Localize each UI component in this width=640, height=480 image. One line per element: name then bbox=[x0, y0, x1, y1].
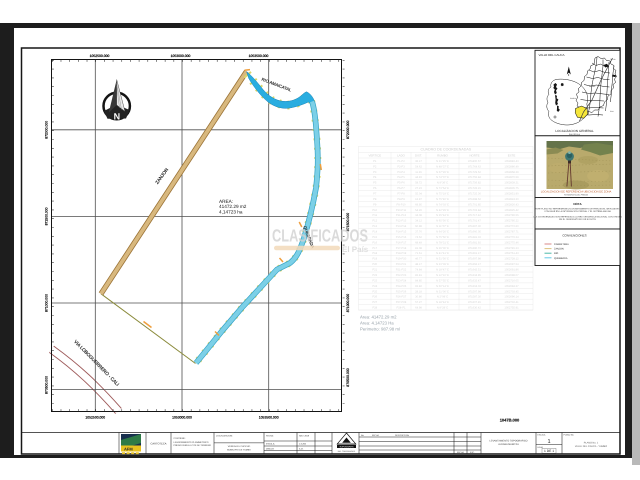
svg-text:P21: P21 bbox=[372, 269, 377, 272]
svg-text:870500.000: 870500.000 bbox=[44, 376, 48, 394]
svg-text:30.86: 30.86 bbox=[415, 296, 422, 299]
svg-text:P22-P23: P22-P23 bbox=[396, 274, 407, 277]
svg-text:P3-P4: P3-P4 bbox=[397, 171, 405, 174]
svg-text:P20-P21: P20-P21 bbox=[396, 263, 407, 266]
svg-text:871666.17: 871666.17 bbox=[468, 263, 481, 266]
svg-text:11.26: 11.26 bbox=[415, 171, 422, 174]
svg-text:28.18: 28.18 bbox=[415, 290, 422, 293]
svg-text:P9-P10: P9-P10 bbox=[397, 203, 406, 206]
svg-text:PLANO No.: PLANO No. bbox=[564, 434, 575, 437]
svg-text:El País: El País bbox=[342, 245, 369, 254]
svg-text:74.84: 74.84 bbox=[415, 269, 422, 272]
svg-text:ZANJON: ZANJON bbox=[554, 248, 564, 251]
svg-text:ESC.: ESC. bbox=[470, 451, 475, 454]
svg-text:CON BASE EN LA INFORMACION PRE: CON BASE EN LA INFORMACION PREDIAL Y EL … bbox=[544, 210, 611, 213]
svg-text:N 21°25' E: N 21°25' E bbox=[436, 160, 449, 163]
svg-text:16.97: 16.97 bbox=[415, 198, 422, 201]
svg-text:1:2.250: 1:2.250 bbox=[299, 443, 307, 446]
svg-text:P10: P10 bbox=[372, 209, 377, 212]
svg-text:Area: 4.14723 Ha: Area: 4.14723 Ha bbox=[360, 321, 394, 326]
svg-text:P7: P7 bbox=[373, 193, 377, 196]
svg-text:46.77: 46.77 bbox=[415, 258, 422, 261]
svg-text:N 50°14' E: N 50°14' E bbox=[436, 285, 449, 288]
svg-text:1052732.41: 1052732.41 bbox=[504, 301, 519, 304]
svg-text:872000.000: 872000.000 bbox=[44, 121, 48, 139]
svg-text:48.17: 48.17 bbox=[415, 263, 422, 266]
svg-text:P27-P28: P27-P28 bbox=[396, 301, 407, 304]
svg-text:MUNICIPIO DE YUMBO: MUNICIPIO DE YUMBO bbox=[227, 448, 251, 451]
svg-text:CLASIFICADOS: CLASIFICADOS bbox=[272, 226, 368, 246]
svg-text:NOV. 2019: NOV. 2019 bbox=[299, 435, 310, 438]
svg-text:LOCALIZACION:: LOCALIZACION: bbox=[216, 435, 233, 438]
svg-text:1052697.54: 1052697.54 bbox=[504, 263, 519, 266]
svg-text:LAS COORDENADAS SON REFERIDAS: LAS COORDENADAS SON REFERIDAS A LA RED G… bbox=[533, 215, 622, 218]
svg-text:CARTOTECA: CARTOTECA bbox=[151, 443, 167, 446]
svg-text:FECHA: FECHA bbox=[457, 451, 464, 454]
svg-text:1053500.000: 1053500.000 bbox=[259, 416, 279, 420]
svg-text:N 2°09' E: N 2°09' E bbox=[437, 296, 449, 299]
svg-text:N 75°50' E: N 75°50' E bbox=[436, 236, 449, 239]
svg-text:1052835.75: 1052835.75 bbox=[504, 187, 519, 190]
svg-text:EN EL OBSERVATORIO DE BOGOTA: EN EL OBSERVATORIO DE BOGOTA bbox=[559, 218, 596, 221]
svg-text:P9: P9 bbox=[373, 203, 377, 206]
svg-text:871702.84: 871702.84 bbox=[468, 209, 481, 212]
svg-text:P23-P24: P23-P24 bbox=[396, 279, 407, 282]
svg-text:1052886.49: 1052886.49 bbox=[504, 165, 519, 168]
svg-text:1047B.000: 1047B.000 bbox=[500, 418, 520, 423]
svg-text:871800.57: 871800.57 bbox=[468, 160, 481, 163]
svg-text:69.95: 69.95 bbox=[415, 203, 422, 206]
svg-text:P4-P5: P4-P5 bbox=[397, 176, 405, 179]
svg-text:P16: P16 bbox=[372, 241, 377, 244]
svg-text:1052694.27: 1052694.27 bbox=[504, 285, 519, 288]
svg-text:1052703.45: 1052703.45 bbox=[504, 290, 519, 293]
svg-text:1052825.42: 1052825.42 bbox=[504, 209, 519, 212]
svg-text:P15: P15 bbox=[372, 236, 377, 239]
svg-text:871000.000: 871000.000 bbox=[44, 294, 48, 312]
svg-text:P13: P13 bbox=[372, 225, 377, 228]
svg-text:LEVANTAMIENTO PLANIMETRICO: LEVANTAMIENTO PLANIMETRICO bbox=[174, 441, 209, 444]
svg-text:1052728.12: 1052728.12 bbox=[504, 258, 519, 261]
svg-text:P5: P5 bbox=[373, 182, 377, 185]
svg-text:N 74°03' E: N 74°03' E bbox=[436, 203, 449, 206]
svg-text:P11: P11 bbox=[373, 214, 378, 217]
svg-text:No.: No. bbox=[361, 434, 365, 437]
svg-text:N 25°44' E: N 25°44' E bbox=[436, 214, 449, 217]
svg-text:P8: P8 bbox=[373, 198, 377, 201]
svg-text:871604.03: 871604.03 bbox=[468, 285, 481, 288]
svg-text:93.82: 93.82 bbox=[415, 285, 422, 288]
svg-text:TULUA: TULUA bbox=[610, 58, 616, 61]
svg-text:N 64°26' E: N 64°26' E bbox=[436, 231, 449, 234]
svg-text:QUEBRADA: QUEBRADA bbox=[554, 257, 568, 260]
svg-text:VALLE DEL CAUCA: VALLE DEL CAUCA bbox=[539, 53, 565, 57]
svg-text:ESCALA: ESCALA bbox=[538, 434, 547, 437]
svg-text:N 74°07' E: N 74°07' E bbox=[436, 176, 449, 179]
svg-text:P26: P26 bbox=[372, 296, 377, 299]
svg-text:N 41°41' E: N 41°41' E bbox=[436, 252, 449, 255]
svg-text:P12-P13: P12-P13 bbox=[396, 220, 407, 223]
svg-text:P17-P18: P17-P18 bbox=[396, 247, 407, 250]
svg-text:1052883.43: 1052883.43 bbox=[504, 160, 519, 163]
svg-text:60.98: 60.98 bbox=[415, 225, 422, 228]
svg-text:N 75°19' E: N 75°19' E bbox=[436, 193, 449, 196]
svg-text:TOPOGRAFIA: TOPOGRAFIA bbox=[339, 446, 354, 449]
svg-text:1052772.60: 1052772.60 bbox=[504, 225, 519, 228]
svg-text:871681.33: 871681.33 bbox=[468, 236, 481, 239]
svg-text:58.72: 58.72 bbox=[415, 182, 422, 185]
svg-text:871500.000: 871500.000 bbox=[44, 207, 48, 225]
svg-text:AFM: AFM bbox=[124, 447, 133, 452]
svg-text:34.12: 34.12 bbox=[415, 220, 422, 223]
svg-text:P14-P15: P14-P15 bbox=[396, 231, 407, 234]
svg-text:1052696.14: 1052696.14 bbox=[504, 296, 519, 299]
svg-text:N 12°10' E: N 12°10' E bbox=[436, 274, 449, 277]
svg-text:871607.45: 871607.45 bbox=[468, 301, 481, 304]
svg-text:N: N bbox=[114, 112, 121, 122]
svg-text:1052858.29: 1052858.29 bbox=[504, 171, 519, 174]
svg-text:AREA:: AREA: bbox=[219, 199, 233, 204]
svg-text:A.M.: A.M. bbox=[299, 447, 304, 450]
svg-text:P27: P27 bbox=[372, 301, 377, 304]
svg-text:1052870.59: 1052870.59 bbox=[504, 176, 519, 179]
svg-text:64.98: 64.98 bbox=[415, 307, 422, 310]
svg-text:P12: P12 bbox=[372, 220, 377, 223]
svg-text:ESTE PLANO NO REPRESENTA UN LE: ESTE PLANO NO REPRESENTA UN LEVANTAMIENT… bbox=[535, 208, 620, 211]
svg-text:RIO: RIO bbox=[554, 252, 558, 255]
svg-text:P2: P2 bbox=[373, 165, 377, 168]
svg-text:871630.42: 871630.42 bbox=[468, 307, 481, 310]
svg-text:P23: P23 bbox=[372, 279, 377, 282]
svg-text:1052796.56: 1052796.56 bbox=[504, 214, 519, 217]
svg-text:871681.92: 871681.92 bbox=[468, 241, 481, 244]
svg-text:37.76: 37.76 bbox=[415, 231, 422, 234]
svg-text:ING. TOPOGRAFICO: ING. TOPOGRAFICO bbox=[338, 450, 356, 453]
svg-text:P2-P3: P2-P3 bbox=[397, 165, 405, 168]
svg-text:81.08: 81.08 bbox=[415, 247, 422, 250]
svg-text:P28-P1: P28-P1 bbox=[397, 307, 406, 310]
svg-text:1053000.000: 1053000.000 bbox=[171, 54, 191, 58]
svg-text:1053000.000: 1053000.000 bbox=[172, 416, 192, 420]
svg-text:N 36°30' E: N 36°30' E bbox=[436, 247, 449, 250]
svg-text:83.81: 83.81 bbox=[415, 274, 422, 277]
svg-text:1052745.33: 1052745.33 bbox=[504, 247, 519, 250]
svg-text:NORTE: NORTE bbox=[469, 153, 479, 157]
svg-text:871701.85: 871701.85 bbox=[468, 203, 481, 206]
svg-text:871698.52: 871698.52 bbox=[468, 198, 481, 201]
svg-text:P17: P17 bbox=[372, 247, 377, 250]
svg-text:871597.98: 871597.98 bbox=[468, 290, 481, 293]
svg-text:N 78°31' E: N 78°31' E bbox=[436, 241, 449, 244]
svg-text:871587.30: 871587.30 bbox=[468, 296, 481, 299]
svg-text:FECHA:: FECHA: bbox=[266, 435, 274, 438]
svg-text:N 51°56' E: N 51°56' E bbox=[436, 258, 449, 261]
svg-text:871729.52: 871729.52 bbox=[468, 171, 481, 174]
svg-text:P15-P16: P15-P16 bbox=[396, 236, 407, 239]
svg-text:FOTOGRAFIA DEL PREDIO: FOTOGRAFIA DEL PREDIO bbox=[564, 193, 589, 196]
svg-text:871764.63: 871764.63 bbox=[468, 165, 481, 168]
svg-text:FECHA: FECHA bbox=[372, 434, 379, 437]
svg-text:1052775.46: 1052775.46 bbox=[504, 241, 519, 244]
svg-text:54.26: 54.26 bbox=[415, 209, 422, 212]
svg-text:1052698.07: 1052698.07 bbox=[504, 274, 519, 277]
svg-text:1052851.90: 1052851.90 bbox=[504, 193, 519, 196]
svg-text:57.27: 57.27 bbox=[415, 301, 422, 304]
svg-text:4,14723 ha: 4,14723 ha bbox=[219, 210, 243, 215]
svg-text:1052500.000: 1052500.000 bbox=[85, 416, 105, 420]
svg-text:P4: P4 bbox=[373, 176, 377, 179]
svg-text:871660.05: 871660.05 bbox=[468, 231, 481, 234]
svg-text:1 DE 1: 1 DE 1 bbox=[544, 449, 554, 453]
svg-text:P6-P7: P6-P7 bbox=[397, 187, 405, 190]
svg-text:P28: P28 bbox=[372, 307, 377, 310]
svg-text:P22: P22 bbox=[372, 274, 377, 277]
svg-text:P5-P6: P5-P6 bbox=[397, 182, 405, 185]
svg-text:N 73°54' E: N 73°54' E bbox=[436, 187, 449, 190]
svg-text:PREDIO RURAL LOTE DE TERRENO: PREDIO RURAL LOTE DE TERRENO bbox=[174, 444, 212, 447]
svg-text:68.49: 68.49 bbox=[415, 241, 422, 244]
svg-text:84.85: 84.85 bbox=[415, 279, 422, 282]
svg-text:Perimetro: 987.98 ml: Perimetro: 987.98 ml bbox=[360, 327, 400, 332]
svg-text:P25: P25 bbox=[372, 290, 377, 293]
svg-text:P7-P8: P7-P8 bbox=[397, 193, 405, 196]
svg-text:LOCALIZACION GENERAL: LOCALIZACION GENERAL bbox=[555, 129, 594, 133]
svg-text:ESCALA:: ESCALA: bbox=[266, 443, 275, 446]
svg-text:74.52: 74.52 bbox=[415, 236, 422, 239]
svg-text:DAGUA: DAGUA bbox=[570, 97, 577, 100]
svg-text:1053500.000: 1053500.000 bbox=[249, 54, 269, 58]
svg-text:CONTIENE:: CONTIENE: bbox=[174, 437, 186, 440]
svg-text:P26-P27: P26-P27 bbox=[396, 296, 407, 299]
svg-text:LOCALIZACION DE REFERENCIA UBI: LOCALIZACION DE REFERENCIA UBICACION DE … bbox=[541, 190, 612, 193]
svg-text:DIST.: DIST. bbox=[415, 153, 422, 157]
svg-text:VERTICE: VERTICE bbox=[369, 153, 382, 157]
svg-text:N 75°40' E: N 75°40' E bbox=[436, 198, 449, 201]
svg-text:1052824.20: 1052824.20 bbox=[504, 198, 519, 201]
svg-text:P19: P19 bbox=[372, 258, 377, 261]
svg-text:P13-P14: P13-P14 bbox=[396, 225, 407, 228]
svg-text:P14: P14 bbox=[372, 231, 377, 234]
svg-text:871000.000: 871000.000 bbox=[346, 294, 350, 313]
svg-text:DIBUJO:: DIBUJO: bbox=[266, 447, 275, 450]
svg-text:DESCRIPCION: DESCRIPCION bbox=[395, 434, 409, 437]
svg-text:VALLE DEL CAUCA - YUMBO: VALLE DEL CAUCA - YUMBO bbox=[575, 445, 607, 448]
svg-text:N 11°07' E: N 11°07' E bbox=[436, 225, 449, 228]
svg-text:1052691.86: 1052691.86 bbox=[504, 269, 519, 272]
svg-text:N 9°36' E: N 9°36' E bbox=[437, 182, 449, 185]
svg-text:CUADRO DE COORDENADAS: CUADRO DE COORDENADAS bbox=[420, 148, 471, 152]
svg-text:N 23°39' E: N 23°39' E bbox=[436, 263, 449, 266]
svg-text:P1-P2: P1-P2 bbox=[397, 160, 405, 163]
svg-text:LADO: LADO bbox=[397, 153, 406, 157]
svg-text:P8-P9: P8-P9 bbox=[397, 198, 405, 201]
svg-text:N 42°29' E: N 42°29' E bbox=[436, 209, 449, 212]
svg-text:871725.36: 871725.36 bbox=[468, 193, 481, 196]
svg-text:1052761.43: 1052761.43 bbox=[504, 252, 519, 255]
svg-text:N 48°37' E: N 48°37' E bbox=[436, 165, 449, 168]
svg-text:41472.29 m2: 41472.29 m2 bbox=[219, 204, 247, 209]
svg-text:1052500.000: 1052500.000 bbox=[90, 54, 110, 58]
svg-text:N 8°29' E: N 8°29' E bbox=[437, 307, 449, 310]
svg-text:871755.84: 871755.84 bbox=[468, 176, 481, 179]
svg-text:P11-P12: P11-P12 bbox=[396, 214, 407, 217]
svg-text:54.62: 54.62 bbox=[415, 165, 422, 168]
svg-text:CONVENCIONES: CONVENCIONES bbox=[562, 233, 586, 237]
svg-text:871691.17: 871691.17 bbox=[468, 252, 481, 255]
svg-text:VEREDA EL CHOCHO: VEREDA EL CHOCHO bbox=[228, 445, 251, 448]
svg-text:1052826.43: 1052826.43 bbox=[504, 203, 519, 206]
svg-text:871634.95: 871634.95 bbox=[468, 274, 481, 277]
svg-text:RUMBO: RUMBO bbox=[437, 153, 449, 157]
svg-text:P1: P1 bbox=[373, 160, 377, 163]
svg-text:CARRETERA: CARRETERA bbox=[554, 243, 569, 246]
svg-text:871690.72: 871690.72 bbox=[468, 247, 481, 250]
svg-text:P16-P17: P16-P17 bbox=[396, 241, 407, 244]
svg-text:871756.82: 871756.82 bbox=[468, 182, 481, 185]
svg-text:P18: P18 bbox=[372, 252, 377, 255]
svg-text:870500.000: 870500.000 bbox=[346, 368, 350, 387]
svg-text:34.08: 34.08 bbox=[415, 214, 422, 217]
svg-text:P24: P24 bbox=[372, 285, 377, 288]
svg-text:871643.51: 871643.51 bbox=[468, 269, 481, 272]
svg-text:36.17: 36.17 bbox=[415, 160, 422, 163]
svg-text:1: 1 bbox=[547, 439, 550, 445]
svg-text:871717.42: 871717.42 bbox=[468, 214, 481, 217]
svg-text:N 18°47' E: N 18°47' E bbox=[436, 269, 449, 272]
svg-text:55.04: 55.04 bbox=[415, 193, 422, 196]
svg-text:CALIMA: CALIMA bbox=[589, 85, 596, 88]
svg-text:N 57°26' E: N 57°26' E bbox=[436, 171, 449, 174]
svg-text:44.93: 44.93 bbox=[415, 176, 422, 179]
svg-text:71.61: 71.61 bbox=[415, 252, 422, 255]
svg-text:1052787.71: 1052787.71 bbox=[504, 231, 519, 234]
svg-text:27.23: 27.23 bbox=[415, 187, 422, 190]
svg-text:871701.47: 871701.47 bbox=[468, 220, 481, 223]
svg-text:1052755.91: 1052755.91 bbox=[504, 307, 519, 310]
svg-text:P10-P11: P10-P11 bbox=[396, 209, 407, 212]
svg-text:1052795.22: 1052795.22 bbox=[504, 220, 519, 223]
svg-text:P25-P26: P25-P26 bbox=[396, 290, 407, 293]
svg-text:N 18°44' E: N 18°44' E bbox=[436, 301, 449, 304]
svg-text:1052839.31: 1052839.31 bbox=[504, 182, 519, 185]
svg-text:N 65°56' E: N 65°56' E bbox=[436, 220, 449, 223]
svg-text:1052776.24: 1052776.24 bbox=[504, 236, 519, 239]
svg-text:871633.47: 871633.47 bbox=[468, 279, 481, 282]
svg-text:871726.15: 871726.15 bbox=[468, 187, 481, 190]
svg-text:872000.000: 872000.000 bbox=[346, 121, 350, 140]
svg-text:P3: P3 bbox=[373, 171, 377, 174]
svg-text:P21-P22: P21-P22 bbox=[396, 269, 407, 272]
svg-text:P20: P20 bbox=[372, 263, 377, 266]
svg-text:ESTE: ESTE bbox=[508, 153, 516, 157]
svg-text:ALDANA MARITZA: ALDANA MARITZA bbox=[498, 443, 519, 446]
svg-text:P18-P19: P18-P19 bbox=[396, 252, 407, 255]
svg-text:871697.30: 871697.30 bbox=[468, 225, 481, 228]
svg-text:N 31°00' E: N 31°00' E bbox=[436, 290, 449, 293]
svg-text:P24-P25: P24-P25 bbox=[396, 285, 407, 288]
svg-text:N 57°55' E: N 57°55' E bbox=[436, 279, 449, 282]
svg-text:Area: 41472.29 m2: Area: 41472.29 m2 bbox=[360, 315, 397, 320]
svg-text:871697.98: 871697.98 bbox=[468, 258, 481, 261]
svg-text:CALI: CALI bbox=[610, 110, 614, 113]
svg-text:1052716.05: 1052716.05 bbox=[504, 279, 519, 282]
svg-text:P6: P6 bbox=[373, 187, 377, 190]
svg-text:P19-P20: P19-P20 bbox=[396, 258, 407, 261]
svg-text:NOTA: NOTA bbox=[573, 202, 582, 206]
